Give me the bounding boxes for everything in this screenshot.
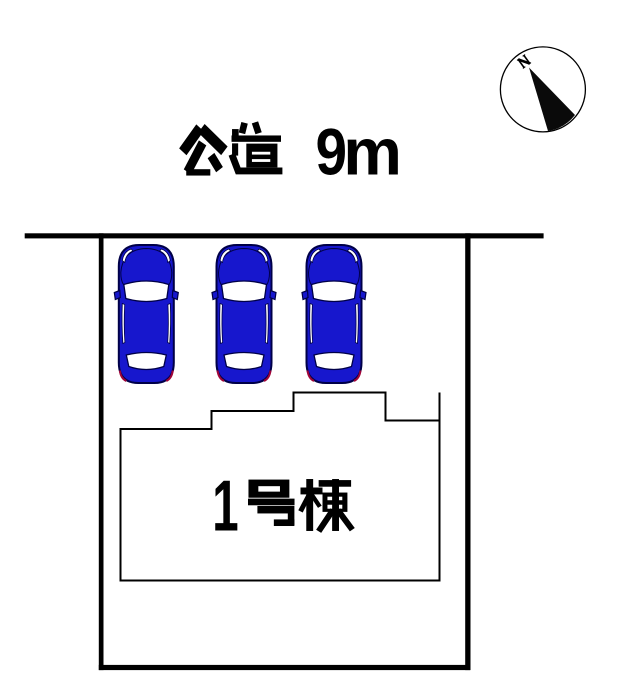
svg-text:m: m (343, 115, 402, 189)
svg-text:1: 1 (212, 466, 238, 546)
